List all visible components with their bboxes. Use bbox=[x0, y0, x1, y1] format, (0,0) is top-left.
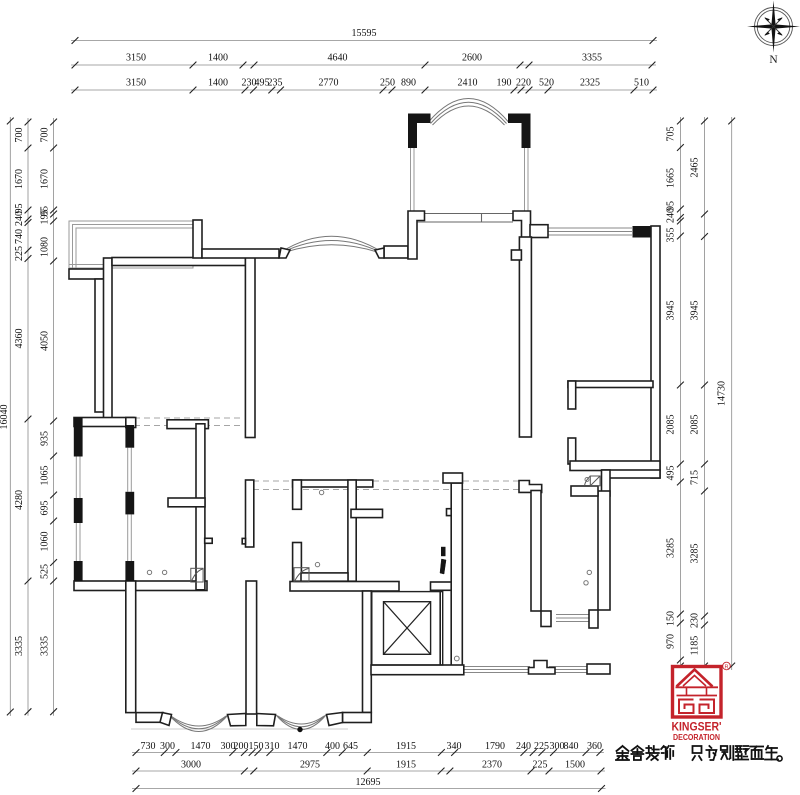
svg-text:1915: 1915 bbox=[396, 760, 416, 771]
svg-text:240: 240 bbox=[666, 208, 677, 223]
svg-text:225: 225 bbox=[533, 760, 548, 771]
svg-text:16040: 16040 bbox=[0, 405, 10, 430]
svg-text:1470: 1470 bbox=[288, 741, 308, 752]
svg-text:935: 935 bbox=[40, 431, 51, 446]
svg-text:4360: 4360 bbox=[14, 329, 25, 349]
svg-text:300: 300 bbox=[160, 741, 175, 752]
svg-text:15595: 15595 bbox=[352, 28, 377, 39]
svg-text:12695: 12695 bbox=[356, 777, 381, 788]
svg-text:645: 645 bbox=[343, 741, 358, 752]
svg-text:730: 730 bbox=[141, 741, 156, 752]
svg-text:3150: 3150 bbox=[126, 78, 146, 89]
svg-text:400: 400 bbox=[325, 741, 340, 752]
svg-text:300: 300 bbox=[550, 741, 565, 752]
svg-text:970: 970 bbox=[666, 634, 677, 649]
svg-text:1060: 1060 bbox=[40, 532, 51, 552]
svg-text:2085: 2085 bbox=[690, 415, 701, 435]
svg-text:1400: 1400 bbox=[208, 53, 228, 64]
svg-text:3150: 3150 bbox=[126, 53, 146, 64]
svg-text:R: R bbox=[725, 665, 729, 671]
svg-text:1400: 1400 bbox=[208, 78, 228, 89]
svg-text:225: 225 bbox=[14, 246, 25, 261]
svg-text:1670: 1670 bbox=[14, 169, 25, 189]
svg-text:195: 195 bbox=[40, 210, 51, 225]
svg-text:230: 230 bbox=[690, 613, 701, 628]
svg-text:1500: 1500 bbox=[565, 760, 585, 771]
svg-text:N: N bbox=[769, 54, 778, 66]
svg-text:2325: 2325 bbox=[580, 78, 600, 89]
svg-text:3335: 3335 bbox=[40, 636, 51, 656]
svg-text:1470: 1470 bbox=[191, 741, 211, 752]
svg-text:3285: 3285 bbox=[690, 544, 701, 564]
svg-text:2975: 2975 bbox=[300, 760, 320, 771]
svg-text:240: 240 bbox=[516, 741, 531, 752]
svg-text:3000: 3000 bbox=[181, 760, 201, 771]
svg-text:510: 510 bbox=[634, 78, 649, 89]
svg-text:495: 495 bbox=[666, 466, 677, 481]
svg-text:700: 700 bbox=[14, 128, 25, 143]
svg-text:3945: 3945 bbox=[690, 301, 701, 321]
svg-text:355: 355 bbox=[666, 228, 677, 243]
svg-text:310: 310 bbox=[265, 741, 280, 752]
svg-text:700: 700 bbox=[40, 128, 51, 143]
svg-text:225: 225 bbox=[534, 741, 549, 752]
svg-text:1915: 1915 bbox=[396, 741, 416, 752]
svg-text:525: 525 bbox=[40, 564, 51, 579]
svg-text:740: 740 bbox=[14, 229, 25, 244]
svg-text:1065: 1065 bbox=[40, 466, 51, 486]
svg-text:1665: 1665 bbox=[666, 168, 677, 188]
svg-text:1790: 1790 bbox=[485, 741, 505, 752]
svg-text:2370: 2370 bbox=[482, 760, 502, 771]
svg-text:705: 705 bbox=[666, 127, 677, 142]
svg-text:240: 240 bbox=[14, 211, 25, 226]
svg-text:3945: 3945 bbox=[666, 301, 677, 321]
svg-text:190: 190 bbox=[497, 78, 512, 89]
svg-text:3335: 3335 bbox=[14, 636, 25, 656]
svg-text:1670: 1670 bbox=[40, 169, 51, 189]
svg-text:890: 890 bbox=[401, 78, 416, 89]
svg-text:2085: 2085 bbox=[666, 415, 677, 435]
svg-text:150: 150 bbox=[666, 611, 677, 626]
svg-text:4640: 4640 bbox=[328, 53, 348, 64]
svg-text:1185: 1185 bbox=[690, 636, 701, 656]
svg-text:2770: 2770 bbox=[319, 78, 339, 89]
svg-text:4050: 4050 bbox=[40, 331, 51, 351]
svg-text:150: 150 bbox=[249, 741, 264, 752]
svg-text:2600: 2600 bbox=[462, 53, 482, 64]
svg-text:KINGSER': KINGSER' bbox=[672, 720, 722, 734]
svg-text:235: 235 bbox=[268, 78, 283, 89]
svg-text:1080: 1080 bbox=[40, 237, 51, 257]
svg-text:3355: 3355 bbox=[582, 53, 602, 64]
svg-text:220: 220 bbox=[516, 78, 531, 89]
svg-text:840: 840 bbox=[564, 741, 579, 752]
svg-text:715: 715 bbox=[690, 470, 701, 485]
svg-text:3285: 3285 bbox=[666, 538, 677, 558]
svg-text:520: 520 bbox=[539, 78, 554, 89]
svg-text:340: 340 bbox=[447, 741, 462, 752]
svg-text:14730: 14730 bbox=[717, 381, 728, 406]
svg-text:2465: 2465 bbox=[690, 158, 701, 178]
svg-text:DECORATION: DECORATION bbox=[673, 733, 720, 742]
svg-text:4280: 4280 bbox=[14, 490, 25, 510]
svg-text:695: 695 bbox=[40, 501, 51, 516]
svg-text:2410: 2410 bbox=[458, 78, 478, 89]
svg-text:360: 360 bbox=[587, 741, 602, 752]
svg-text:200: 200 bbox=[234, 741, 249, 752]
svg-text:250: 250 bbox=[380, 78, 395, 89]
